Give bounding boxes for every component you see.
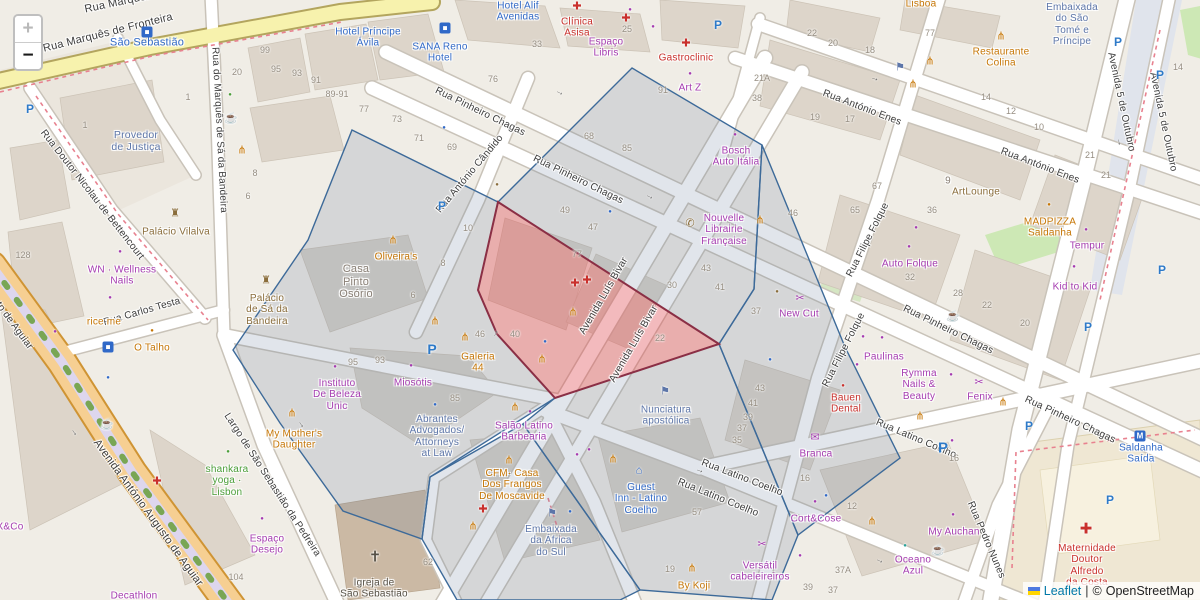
openstreetmap-link[interactable]: OpenStreetMap bbox=[1106, 584, 1194, 598]
leaflet-link[interactable]: Leaflet bbox=[1044, 584, 1082, 598]
attribution-bar: Leaflet | © OpenStreetMap bbox=[1023, 582, 1200, 600]
zoom-in-button[interactable]: + bbox=[15, 16, 41, 43]
attribution-separator: | bbox=[1085, 584, 1088, 598]
zoom-out-button[interactable]: − bbox=[15, 43, 41, 69]
map-viewport[interactable]: Rua Marquês de FronteiraRua Marquês de F… bbox=[0, 0, 1200, 600]
copyright-symbol: © bbox=[1093, 584, 1102, 598]
overlay-polygons-svg bbox=[0, 0, 1200, 600]
ukraine-flag-icon bbox=[1028, 587, 1040, 595]
zoom-control: + − bbox=[13, 14, 43, 71]
